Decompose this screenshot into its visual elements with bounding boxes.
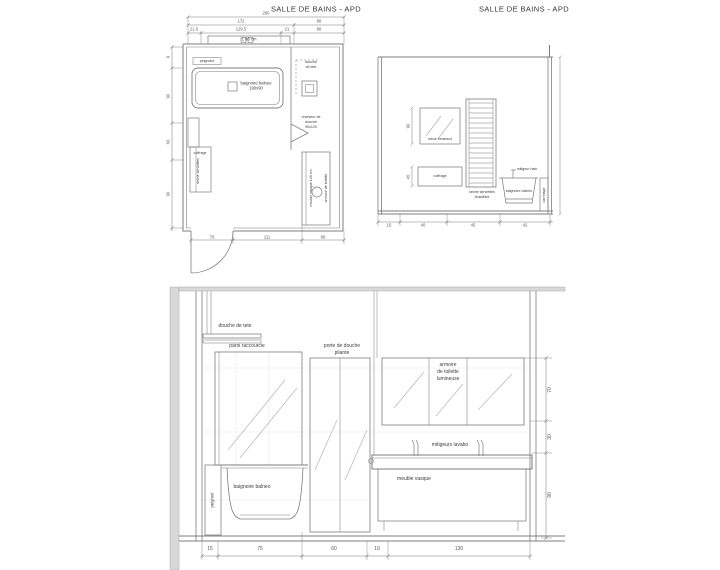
main-dim-bottom: 75 [257, 547, 263, 553]
main-dim-bottom: 60 [331, 547, 337, 553]
mirror-cabinet-label-3: lumineuse [437, 377, 460, 383]
basin-symbol [312, 187, 322, 197]
vanity-unit-label: meuble vasque [397, 477, 431, 483]
shower-tray-label-2: douche [305, 120, 317, 124]
main-dim-right: 90 [548, 492, 554, 498]
plan-dim-bottom: 68 [321, 236, 326, 241]
side-elevation-drawing [377, 45, 562, 226]
side-dim-coffrage: 45 [407, 175, 412, 180]
bathtub-label: baignoire balneo [234, 485, 271, 491]
main-dim-bottom: 15 [207, 547, 213, 553]
plan-title: SALLE DE BAINS - APD [271, 6, 361, 15]
plan-dim: 88 [317, 28, 322, 33]
main-dim-bottom: 19 [374, 547, 380, 553]
shower-tray-label-1: receveur de [302, 115, 321, 119]
tub-jet-symbol [228, 82, 237, 91]
side-tiling-label: carrelage [542, 188, 546, 203]
peignoir-label: peignoir [211, 493, 216, 508]
glass-panel-symbol [215, 352, 302, 465]
ceiling-slab-shade [179, 287, 565, 291]
main-dim-right: 70 [548, 387, 554, 393]
plan-head-shower-label-1: douche [305, 60, 317, 64]
main-right-dimension-lines [524, 357, 552, 540]
side-dim-mirror: 90 [407, 124, 412, 129]
elevation-title: SALLE DE BAINS - APD [479, 6, 569, 15]
plan-dimension-lines [171, 16, 346, 245]
plan-dim-left: 90 [167, 94, 172, 99]
side-mixer-label: mitigeur bain [517, 167, 538, 171]
plan-dim-bottom: 70 [210, 236, 215, 241]
folding-door-label-1: porte de douche [324, 344, 360, 350]
side-coffrage-label: coffrage [434, 174, 447, 178]
plan-dim-bottom: 111 [264, 236, 270, 241]
side-dim-bottom: 40 [421, 224, 426, 229]
plan-bathtub-size-label: 190x90 [249, 87, 263, 92]
plan-dim-total: 260 [263, 12, 270, 17]
plan-dim: 21.5 [190, 28, 198, 33]
side-bathtub-label: baignoire balneo [506, 189, 533, 193]
vanity-counter-symbol [372, 455, 532, 469]
main-dim-bottom: 130 [455, 547, 463, 553]
shower-head-symbol [302, 81, 317, 96]
folding-door-label-2: pliante [335, 351, 350, 357]
plan-dim: 129.5 [236, 28, 246, 33]
shower-tray-label-3: 90x120 [305, 125, 317, 129]
plan-dim-left: 9 [167, 56, 172, 58]
plan-dim-left: 90 [167, 192, 172, 197]
linework-layer [0, 0, 720, 570]
side-radiator-label-2: chauffant [475, 195, 490, 199]
peignoirs-label: peignoirs [200, 59, 215, 63]
side-radiator-label-1: seche serviettes [469, 190, 495, 194]
head-shower-label: douche de tete [218, 324, 251, 330]
side-dim-bottom: 42 [523, 224, 528, 229]
side-dim-bottom: 45 [471, 224, 476, 229]
plan-coffrage-label: coffrage [194, 151, 207, 155]
niche-width-note: ± 98 cm [242, 38, 257, 43]
plan-cabinet-label: armoire de toilette [324, 174, 328, 203]
plan-head-shower-label-2: de tete [306, 65, 317, 69]
wall-section-shade [170, 287, 179, 570]
mirror-cabinet-label-1: armoire [440, 363, 457, 369]
architectural-drawing-sheet: SALLE DE BAINS - APD SALLE DE BAINS - AP… [0, 0, 720, 570]
head-shower-symbol [203, 334, 261, 338]
basin-mixers-label: mitigeurs lavabo [432, 443, 468, 449]
plan-towel-radiator-label: seche serviettes [196, 158, 200, 184]
mirror-cabinet-label-2: de toilette [437, 370, 459, 376]
plan-dim-left: 60 [167, 140, 172, 145]
main-dim-right: 30 [548, 434, 554, 440]
plan-vanity-label: meuble vasque 140 cm [309, 169, 313, 206]
glass-panel-label: paroi raccourcie [229, 344, 265, 350]
bathtub-front-symbol [227, 468, 303, 519]
floor-plan-drawing [171, 16, 346, 274]
plan-dim: 88 [317, 20, 322, 25]
plan-dim: 172 [238, 20, 245, 25]
tub-mixer-symbol [511, 170, 516, 178]
side-dim-bottom: 15 [387, 224, 392, 229]
side-mirror-label: miroir lumineux [428, 137, 452, 141]
plan-dim: 21 [285, 28, 290, 33]
